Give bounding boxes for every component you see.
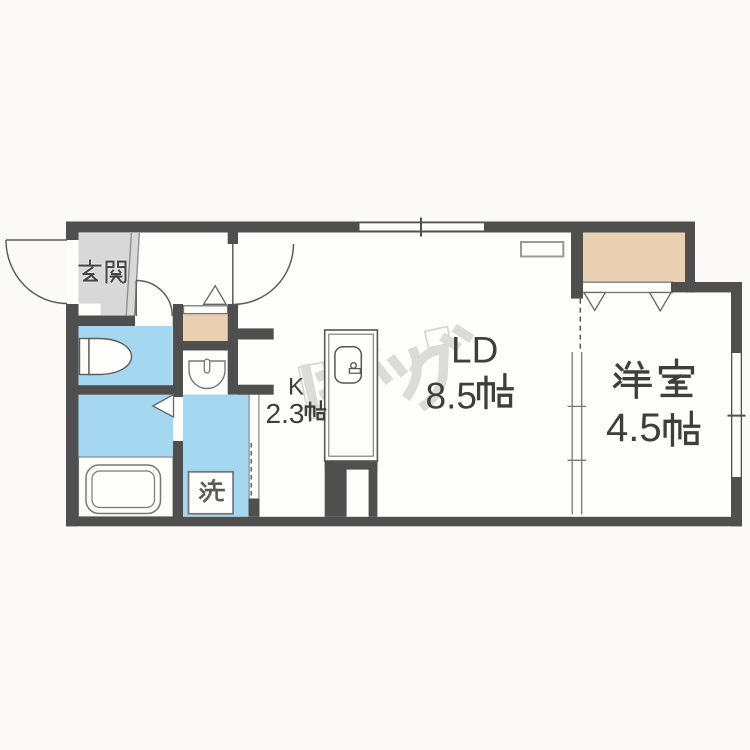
svg-text:8.5: 8.5 [426,376,477,417]
svg-text:4.5: 4.5 [606,406,662,450]
svg-text:LD: LD [451,330,498,371]
svg-text:K: K [288,373,304,400]
svg-text:2.3: 2.3 [266,398,305,429]
